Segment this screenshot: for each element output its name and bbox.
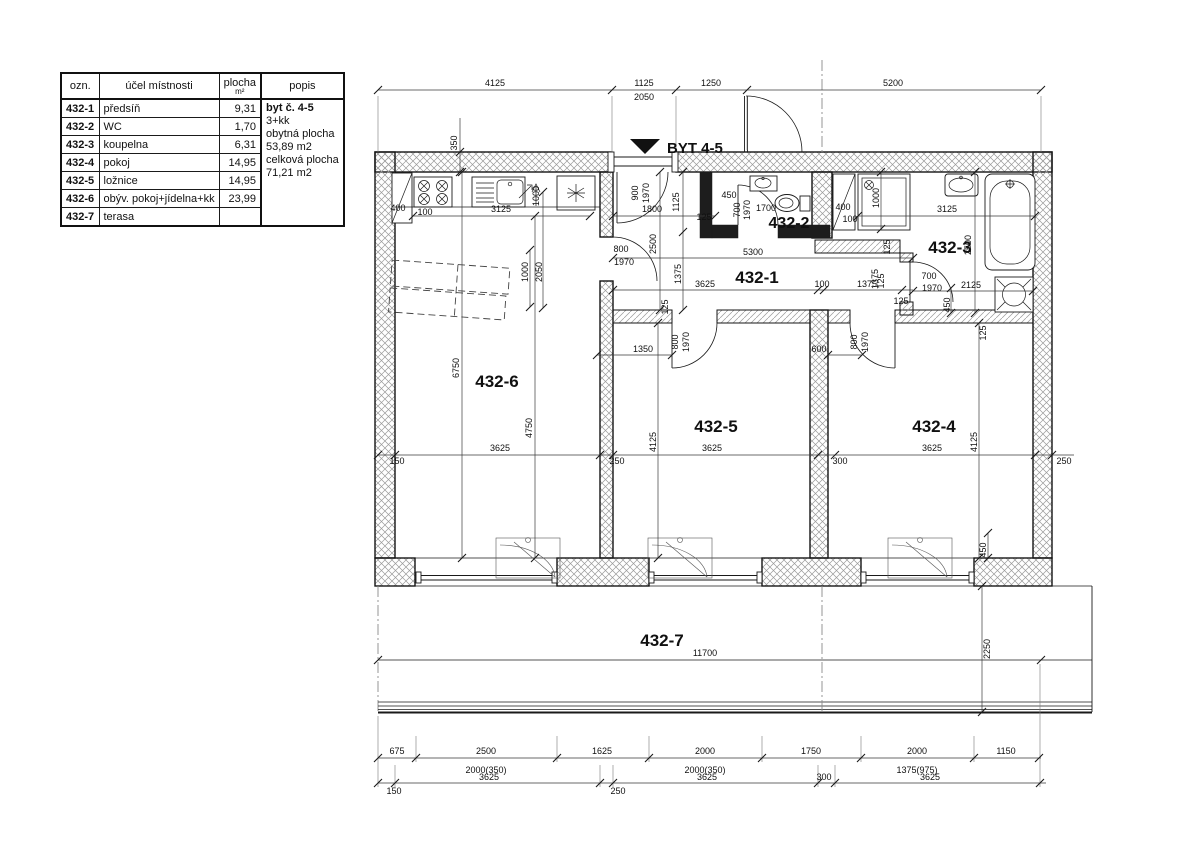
- room-id: 432-2: [61, 118, 99, 136]
- dim-label: 3625: [695, 279, 715, 289]
- room-area: 23,99: [219, 190, 261, 208]
- dim-label: 4125: [485, 78, 505, 88]
- dim-label: 300: [832, 456, 847, 466]
- dim-label: 1970: [681, 332, 691, 352]
- dim-label: 1375: [673, 264, 683, 284]
- toilet: [775, 195, 810, 212]
- bathtub: [985, 174, 1035, 270]
- dim-label: 450: [721, 190, 736, 200]
- room-id: 432-7: [61, 208, 99, 227]
- dim-label: 125: [978, 325, 988, 340]
- dim-label: 2000: [695, 746, 715, 756]
- dim-label: 1150: [996, 746, 1015, 756]
- room-id: 432-5: [61, 172, 99, 190]
- dim-label: 2250: [982, 639, 992, 659]
- dim-label: 1000: [871, 188, 881, 208]
- dim-label: 1700: [756, 203, 776, 213]
- dim-label: 2050: [534, 262, 544, 282]
- dim-label: 600: [811, 344, 826, 354]
- dim-label: 800: [670, 334, 680, 349]
- room-area: 1,70: [219, 118, 261, 136]
- dim-label: 700: [921, 271, 936, 281]
- room-label-432-3: 432-3: [928, 238, 971, 257]
- apartment-info-line: 71,21 m2: [266, 167, 339, 180]
- dim-label: 3125: [491, 204, 511, 214]
- header-ozn: ozn.: [61, 73, 99, 99]
- room-label-432-1: 432-1: [735, 268, 778, 287]
- room-area: [219, 208, 261, 227]
- dim-label: 5300: [743, 247, 763, 257]
- shower: [858, 174, 910, 230]
- apartment-info-line: obytná plocha: [266, 128, 339, 141]
- dim-label: 3625: [697, 772, 717, 782]
- dim-label: 11700: [693, 648, 717, 658]
- room-id: 432-6: [61, 190, 99, 208]
- dim-label: 4125: [969, 432, 979, 452]
- dim-label: 2500: [476, 746, 496, 756]
- dim-label: 1250: [701, 78, 721, 88]
- dim-label: 1800: [642, 204, 662, 214]
- header-popis: popis: [261, 73, 344, 99]
- dim-label: 250: [1056, 456, 1071, 466]
- dim-label: 150: [389, 456, 404, 466]
- stove: [414, 177, 452, 207]
- fridge: [557, 176, 595, 210]
- kitchen-island: [389, 260, 510, 320]
- dim-label: 2000: [907, 746, 927, 756]
- kitchen-sink: [472, 177, 525, 207]
- dim-label: 5200: [883, 78, 903, 88]
- dim-label: 3625: [920, 772, 940, 782]
- dim-label: 1125: [634, 78, 653, 88]
- apartment-info-line: celková plocha: [266, 154, 339, 167]
- dim-label: 450: [942, 297, 952, 312]
- dim-label: 800: [849, 334, 859, 349]
- floor-plan-document: 4125112520501250520035040010031251000100…: [0, 0, 1200, 848]
- room-id: 432-4: [61, 154, 99, 172]
- dim-label: 3125: [937, 204, 957, 214]
- room-purpose: předsíň: [99, 99, 219, 118]
- dim-label: 2050: [634, 92, 654, 102]
- room-label-432-6: 432-6: [475, 372, 518, 391]
- dim-label: 250: [609, 456, 624, 466]
- room-purpose: pokoj: [99, 154, 219, 172]
- dim-label: 1970: [614, 257, 634, 267]
- window-432-6: [416, 538, 560, 584]
- dim-label: 675: [389, 746, 404, 756]
- room-id: 432-3: [61, 136, 99, 154]
- dim-label: 250: [610, 786, 625, 796]
- header-purpose: účel místnosti: [99, 73, 219, 99]
- bath-washbasin: [945, 174, 978, 196]
- room-label-432-2: 432-2: [769, 215, 810, 232]
- legend-table: ozn. účel místnosti plocham² popis 432-1…: [60, 72, 345, 227]
- room-area: 9,31: [219, 99, 261, 118]
- wardrobe: [392, 173, 412, 223]
- dim-label: 3625: [479, 772, 499, 782]
- room-label-432-5: 432-5: [694, 417, 737, 436]
- dim-label: 100: [417, 207, 432, 217]
- dim-label: 1000: [520, 262, 530, 282]
- room-purpose: terasa: [99, 208, 219, 227]
- dim-label: 4750: [524, 418, 534, 438]
- apartment-title: byt č. 4-5: [266, 102, 339, 115]
- dim-label: 6750: [451, 358, 461, 378]
- dim-label: 900: [630, 185, 640, 200]
- washing-machine: [995, 277, 1033, 312]
- dim-label: 350: [449, 135, 459, 150]
- dim-label: 1970: [922, 283, 942, 293]
- entrance-label: BYT 4-5: [667, 140, 723, 157]
- popis-cell: byt č. 4-53+kkobytná plocha53,89 m2celko…: [261, 99, 344, 226]
- room-purpose: koupelna: [99, 136, 219, 154]
- room-purpose: obýv. pokoj+jídelna+kk: [99, 190, 219, 208]
- dim-label: 400: [390, 203, 405, 213]
- kitchen-fixtures: [389, 173, 600, 320]
- dim-label: 450: [978, 542, 988, 557]
- dim-label: 100: [842, 214, 857, 224]
- dim-label: 2500: [648, 234, 658, 254]
- room-area: 14,95: [219, 154, 261, 172]
- room-area: 14,95: [219, 172, 261, 190]
- window-432-5: [648, 538, 762, 584]
- windows: [416, 538, 974, 584]
- dim-label: 1350: [633, 344, 653, 354]
- dim-label: 1970: [742, 200, 752, 220]
- dim-label: 2125: [961, 280, 981, 290]
- window-432-4: [861, 538, 974, 584]
- dim-label: 800: [613, 244, 628, 254]
- dim-label: 300: [816, 772, 831, 782]
- dim-label: 1125: [671, 192, 681, 211]
- dim-label: 150: [386, 786, 401, 796]
- room-purpose: WC: [99, 118, 219, 136]
- dim-label: 3625: [922, 443, 942, 453]
- room-label-432-4: 432-4: [912, 417, 956, 436]
- apartment-info-line: 3+kk: [266, 115, 339, 128]
- room-id: 432-1: [61, 99, 99, 118]
- header-area: plocham²: [219, 73, 261, 99]
- entrance-arrow-marker: [630, 139, 660, 154]
- dim-label: 1750: [801, 746, 821, 756]
- dim-label: 1000: [531, 186, 541, 206]
- dim-label: 3625: [702, 443, 722, 453]
- dim-label: 1375: [870, 269, 880, 289]
- dim-label: 125: [660, 299, 670, 314]
- dim-label: 125: [696, 212, 711, 222]
- dim-label: 1625: [592, 746, 612, 756]
- legend-row-432-1: 432-1předsíň9,31byt č. 4-53+kkobytná plo…: [61, 99, 344, 118]
- apartment-info-line: 53,89 m2: [266, 141, 339, 154]
- room-purpose: ložnice: [99, 172, 219, 190]
- wc-washbasin: [750, 176, 777, 191]
- dim-label: 125: [882, 239, 892, 254]
- legend-header-row: ozn. účel místnosti plocham² popis: [61, 73, 344, 99]
- dim-label: 1970: [641, 183, 651, 203]
- dim-label: 3625: [490, 443, 510, 453]
- room-area: 6,31: [219, 136, 261, 154]
- dim-label: 400: [835, 202, 850, 212]
- dim-label: 1970: [860, 332, 870, 352]
- dim-label: 4125: [648, 432, 658, 452]
- room-label-432-7: 432-7: [640, 631, 683, 650]
- dim-label: 700: [732, 202, 742, 217]
- dim-label: 125: [893, 296, 908, 306]
- dim-label: 100: [814, 279, 829, 289]
